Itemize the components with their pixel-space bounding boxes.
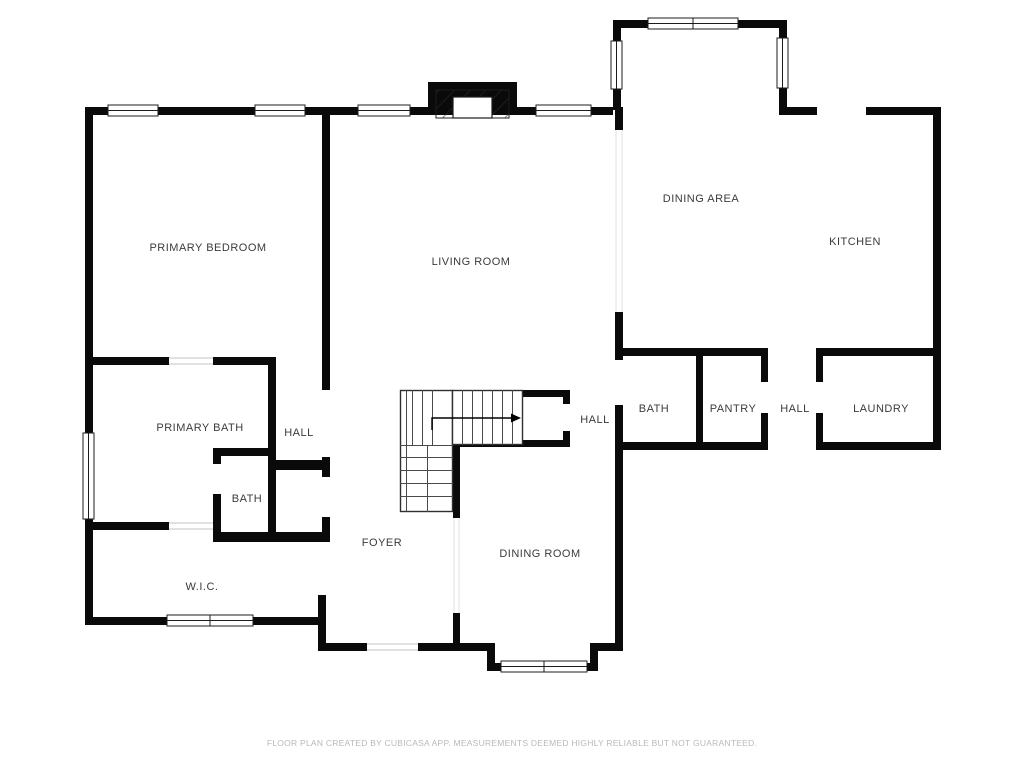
wall-segment [563,390,570,404]
wall-segment [85,107,613,115]
wall-segment [85,107,93,435]
wall-segment [617,442,768,450]
wall-segment [696,348,703,450]
wall-segment [325,643,367,651]
window [611,41,622,89]
footer-disclaimer: FLOOR PLAN CREATED BY CUBICASA APP. MEAS… [0,738,1024,748]
window [255,105,305,116]
wall-segment [615,450,623,650]
floor-plan-page: PRIMARY BEDROOMLIVING ROOMDINING AREAKIT… [0,0,1024,768]
wall-segment [213,357,273,365]
wall-segment [85,522,169,530]
wall-segment [85,617,169,625]
wall-segment [590,643,623,651]
wall-segment [761,413,768,450]
wall-segment [816,413,823,450]
floor-plan-drawing [0,0,1024,768]
wall-segment [816,356,823,382]
wall-segment [453,613,460,643]
wall-segment [615,405,623,450]
staircase [400,390,523,512]
wall-segment [85,357,169,365]
window [108,105,158,116]
door-opening [169,358,213,364]
wall-segment [213,448,221,464]
window [501,661,587,672]
wall-segment [816,442,941,450]
wall-segment [85,518,93,625]
door-opening [169,523,213,529]
wall-segment [213,532,328,542]
wall-segment [322,107,330,390]
wall-segment [623,348,768,356]
fireplace [428,82,517,118]
wide-opening [454,518,459,613]
fireplace-firebox [453,97,492,118]
window [648,18,738,29]
wall-segment [318,595,326,651]
window [83,433,94,519]
wall-segment [933,107,941,450]
wall-segment [615,107,623,130]
wide-opening [616,130,622,312]
wall-segment [250,617,318,625]
window [167,615,253,626]
wall-segment [418,643,495,651]
interior-walls [85,107,933,643]
window [536,105,591,116]
window [358,105,410,116]
wall-segment [816,348,933,356]
wall-segment [213,448,270,456]
front-door-opening [367,644,418,650]
wall-segment [453,447,460,518]
window [777,38,788,88]
wall-segment [866,107,941,115]
exterior-walls [85,20,941,671]
wall-segment [615,312,623,360]
wall-segment [761,348,768,382]
wall-segment [268,460,330,470]
wall-segment [779,107,817,115]
